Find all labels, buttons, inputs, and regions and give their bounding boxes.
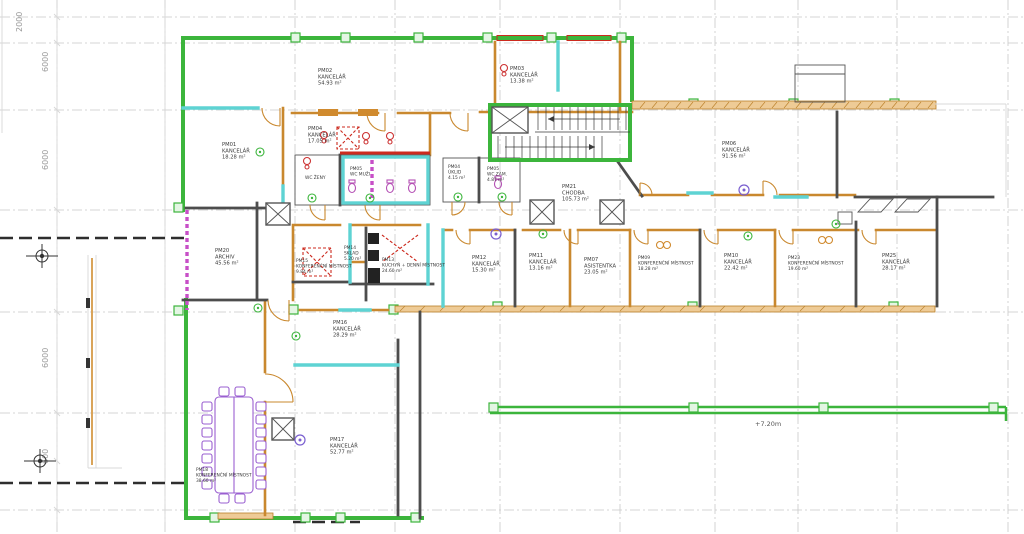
door-sensor-icon [454,193,462,201]
room-label-pm23: PM23KONFERENČNÍ MÍSTNOST19.60 m² [788,255,844,272]
room-label-wc-zeny: WC ŽENY [305,173,326,181]
door-sensor-icon [256,148,264,156]
floor-plan-page: 2000 6000 6000 6000 600 [0,0,1024,534]
room-label-pm09: PM09KONFERENČNÍ MÍSTNOST18.28 m² [638,255,694,272]
shaft-icon [266,203,290,225]
room-label-pm16: PM16KANCELÁŘ28.29 m² [333,320,361,339]
shaft-icon [600,200,624,224]
elevator-shaft-icon [492,107,528,133]
door-sensor-icon [498,193,506,201]
terrace-wall [86,255,122,468]
floor-plan-canvas: 2000 6000 6000 6000 600 [0,0,1024,534]
door-sensor-icon [308,194,316,202]
room-label-pm17: PM17KANCELÁŘ52.77 m² [330,437,358,456]
room-label-pm04: PM04KANCELÁŘ17.05 m² [308,126,336,145]
elevation-label: +7.20m [755,420,781,428]
dim-2000: 2000 [15,12,24,32]
radiator [358,109,378,116]
fixture-icon-red [363,133,370,145]
roof-structures [795,65,930,224]
shaft-icon [530,200,554,224]
room-label-pm13: PM13KUCHYŇ + DENNÍ MÍSTNOST24.60 m² [382,257,445,274]
door-sensor-icon [744,232,752,240]
stair-direction-arrow [548,116,595,150]
room-label-wc-muzi: PM05WC MUŽI [350,166,370,177]
survey-point-icon [24,449,56,473]
room-label-pm03: PM03KANCELÁŘ13.38 m² [510,66,538,85]
radiator-icon [657,242,671,249]
door-sensor-icon [292,332,300,340]
room-label-uklid: PM04ÚKLID4.15 m² [448,164,465,181]
dim-6000-c: 6000 [41,348,50,368]
conference-table [202,387,266,503]
room-label-pm20: PM20ARCHIV45.56 m² [215,248,239,267]
fixture-icon-red [387,133,394,145]
radiator-icon [819,237,833,244]
room-label-pm02: PM02KANCELÁŘ54.93 m² [318,68,346,87]
room-label-pm07: PM07ASISTENTKA23.05 m² [584,257,616,276]
radiator [318,109,338,116]
room-label-pm25: PM25KANCELÁŘ28.17 m² [882,253,910,272]
shaft-icon [272,418,294,440]
room-label-pm10: PM10KANCELÁŘ22.42 m² [724,253,752,272]
room-label-pm06: PM06KANCELÁŘ91.56 m² [722,141,750,160]
door-sensor-icon [254,304,262,312]
room-label-pm14: PM14SKLAD5.20 m² [344,245,361,262]
wheelchair-icon [739,185,749,195]
survey-point-icon [26,244,58,268]
room-label-pm12: PM12KANCELÁŘ15.30 m² [472,255,500,274]
toilet-icon [387,180,394,193]
dim-6000-a: 6000 [41,52,50,72]
dim-6000-b: 6000 [41,150,50,170]
toilet-icon [349,180,356,193]
fixture-glyphs [254,65,840,446]
fixture-icon-red [501,65,508,77]
room-label-pm21: PM21CHODBA105.73 m² [562,184,589,203]
toilet-icon [409,180,416,193]
shaft-icon-red [337,127,359,149]
property-line [0,238,188,483]
wheelchair-icon [295,435,305,445]
fixture-icon-red [304,158,311,170]
room-label-wc-zam: PM05WC ZAM.4.87 m² [487,166,507,183]
room-label-pm01: PM01KANCELÁŘ18.28 m² [222,142,250,161]
room-label-pm11: PM11KANCELÁŘ13.16 m² [529,253,557,272]
